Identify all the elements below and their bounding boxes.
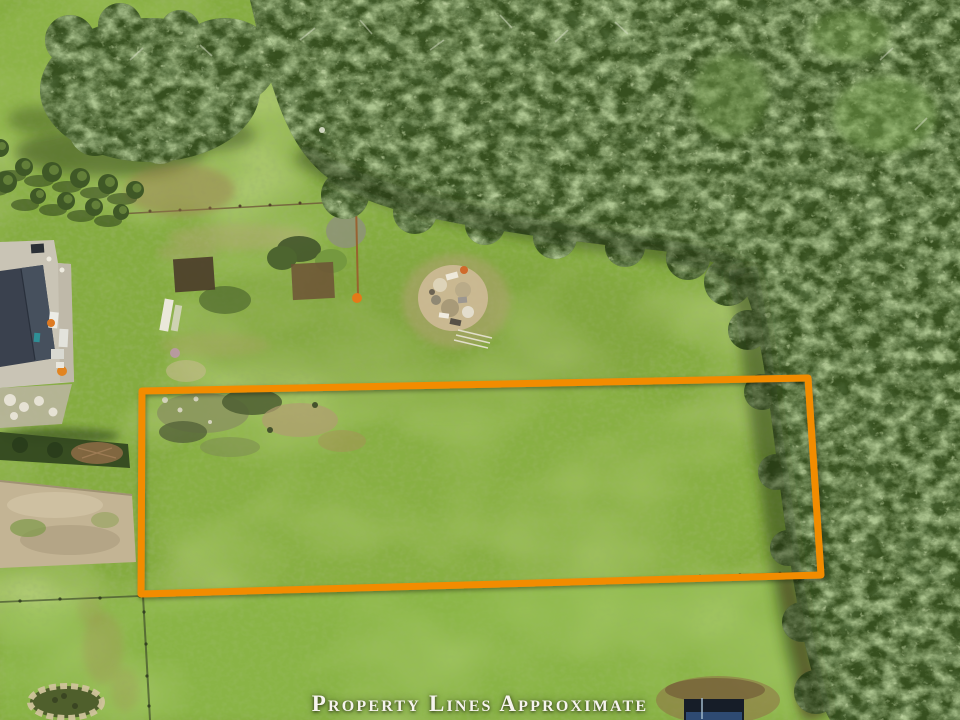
garden-plot bbox=[173, 257, 215, 293]
debris-pile bbox=[402, 254, 510, 348]
aerial-photo: Property Lines Approximate bbox=[0, 0, 960, 720]
orange-equipment bbox=[47, 319, 55, 327]
dirt-road bbox=[0, 428, 136, 568]
garden-plot bbox=[291, 262, 335, 300]
white-vehicle bbox=[59, 329, 69, 347]
house bbox=[0, 240, 74, 428]
forest-clearing bbox=[692, 53, 768, 137]
stone-fire-ring bbox=[30, 686, 102, 718]
blossom-bush bbox=[326, 214, 366, 248]
forest-clearing bbox=[833, 77, 937, 153]
orange-marker bbox=[352, 293, 362, 303]
photo-canvas bbox=[0, 0, 960, 720]
